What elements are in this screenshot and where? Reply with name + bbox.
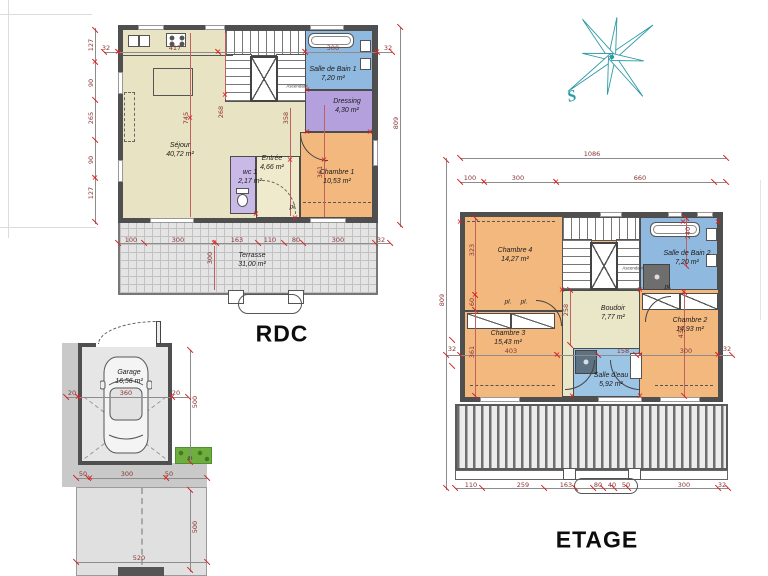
window [205, 25, 225, 30]
elevator-shaft [250, 56, 278, 102]
closet [467, 313, 511, 329]
dim-label: 300 [678, 481, 690, 489]
room-label-salle-de-bain-2: Salle de Bain 27,20 m² [663, 249, 710, 267]
wall-node-marker: ✕ [87, 474, 94, 483]
wall-node-marker: ✕ [569, 392, 576, 401]
wall-node-marker: ✕ [215, 48, 222, 57]
dimension-line [76, 562, 207, 563]
dim-label: 300 [172, 236, 184, 244]
garage-plan [78, 343, 172, 465]
wall-node-marker: ✕ [302, 48, 309, 57]
dim-label: 163 [231, 236, 243, 244]
sink-icon [706, 228, 717, 241]
dim-label: 360 [120, 389, 132, 397]
dim-label: 358 [282, 112, 290, 124]
wall-node-marker: ✕ [715, 218, 722, 227]
wall-node-marker: ✕ [457, 218, 464, 227]
sink-icon [360, 58, 371, 70]
dimension-line [446, 355, 732, 356]
window [118, 72, 123, 94]
sliding-door [150, 218, 194, 223]
stairs-direction-label: Ascendant [622, 266, 643, 271]
wall-node-marker: ✕ [304, 128, 311, 137]
room-label-dressing: Dressing4,30 m² [333, 97, 361, 115]
dim-label: 127 [87, 187, 95, 199]
dimension-line [684, 292, 685, 396]
closet-label: pl. [521, 299, 528, 306]
floor-title-etage: ETAGE [556, 527, 639, 554]
floorplan-sheet: Séjour40,72 m² wc 12,17 m² Entrée4,66 m²… [0, 0, 768, 576]
dim-label: 300 [512, 174, 524, 182]
dimension-line [76, 478, 207, 479]
room-label-salle-de-bain-1: Salle de Bain 17,20 m² [309, 65, 356, 83]
dimension-line [400, 27, 401, 227]
dimension-line [460, 158, 726, 159]
dim-label: 268 [217, 106, 225, 118]
floor-plan-rdc [118, 25, 378, 223]
dimension-line [225, 33, 226, 99]
dim-label: 259 [517, 481, 529, 489]
balcony-door [598, 397, 642, 402]
wall-node-marker: ✕ [637, 286, 644, 295]
window [697, 212, 713, 217]
wall-node-marker: ✕ [681, 288, 688, 297]
closet-dashed-line [470, 385, 555, 386]
dim-label: 240 [684, 227, 692, 239]
wall-node-marker: ✕ [187, 114, 194, 123]
room-label-salle-d-eau: Salle d'eau5,92 m² [594, 371, 628, 389]
wall-node-marker: ✕ [637, 392, 644, 401]
dimension-line [0, 14, 92, 15]
staircase-upper-treads [562, 217, 640, 241]
dimension-line [446, 158, 447, 490]
dim-label: 158 [617, 347, 629, 355]
dim-label: 809 [438, 294, 446, 306]
dimension-line [214, 246, 215, 290]
dim-label: 110 [465, 481, 477, 489]
dim-label: 90 [87, 156, 95, 164]
wall-node-marker: ✕ [169, 393, 176, 402]
sink-icon [360, 40, 371, 52]
balcony-step [563, 468, 576, 480]
room-label-chambre-4: Chambre 414,27 m² [498, 246, 533, 264]
kitchen-sink-icon [128, 35, 139, 47]
dim-label: 32 [448, 345, 456, 353]
terrace-curved-step [238, 294, 302, 314]
wall-node-marker: ✕ [287, 156, 294, 165]
bathtub-icon [650, 222, 700, 237]
closet-label: pl. [665, 284, 672, 291]
dimension-line [190, 33, 191, 217]
dim-label: 433 [677, 326, 685, 338]
room-label-garage: Garage16,56 m² [115, 368, 143, 386]
dim-label: 100 [125, 236, 137, 244]
window [600, 212, 622, 217]
toilet-bowl-icon [237, 194, 248, 207]
window [373, 140, 378, 166]
dimension-line [8, 0, 9, 238]
window [668, 212, 682, 217]
dim-label: 300 [206, 252, 214, 264]
window [118, 160, 123, 182]
dim-label: 809 [392, 117, 400, 129]
room-label-entree: Entrée4,66 m² [260, 154, 284, 172]
gate [118, 567, 164, 576]
window [480, 397, 520, 402]
dim-label: 500 [191, 396, 199, 408]
dim-label: 258 [562, 304, 570, 316]
dim-label: 520 [133, 554, 145, 562]
wall-node-marker: ✕ [554, 351, 561, 360]
staircase-right-treads [276, 54, 307, 102]
closet-dashed-line [303, 202, 371, 203]
wall-node-marker: ✕ [163, 474, 170, 483]
balcony-railing [455, 404, 728, 470]
dim-label: 300 [327, 44, 339, 52]
dimension-tick [449, 363, 456, 370]
wall-node-marker: ✕ [637, 351, 644, 360]
dimension-line [460, 182, 726, 183]
dimension-tick [449, 337, 456, 344]
wall-node-marker: ✕ [92, 58, 99, 67]
wall-node-marker: ✕ [374, 48, 381, 57]
window [138, 25, 164, 30]
dim-label: 361 [468, 346, 476, 358]
dim-label: 300 [332, 236, 344, 244]
cupboard-icon [124, 92, 135, 142]
window [660, 397, 700, 402]
wall-node-marker: ✕ [481, 178, 488, 187]
wall-node-marker: ✕ [115, 48, 122, 57]
staircase-left-treads [225, 54, 252, 102]
dim-label: 127 [87, 39, 95, 51]
wall-node-marker: ✕ [680, 218, 687, 227]
wall-node-marker: ✕ [92, 174, 99, 183]
wall-node-marker: ✕ [715, 351, 722, 360]
dim-label: 323 [468, 244, 476, 256]
dimension-line [118, 243, 390, 244]
dim-label: 660 [634, 174, 646, 182]
window-dashed-line [467, 221, 555, 222]
room-label-wc: wc 12,17 m² [238, 168, 262, 186]
dimension-line [760, 180, 761, 320]
dim-label: 403 [505, 347, 517, 355]
room-label-sejour: Séjour40,72 m² [166, 141, 194, 159]
window [310, 25, 344, 30]
dim-label: 100 [464, 174, 476, 182]
room-label-terrasse: Terrasse31,00 m² [238, 251, 266, 269]
staircase-right-treads [616, 239, 640, 290]
room-label-chambre-1: Chambre 110,53 m² [320, 168, 355, 186]
room-label-boudoir: Boudoir7,77 m² [601, 304, 625, 322]
dimension-line [570, 290, 571, 345]
closet-label: pl. [290, 204, 297, 211]
wall-node-marker: ✕ [553, 178, 560, 187]
dim-label: 300 [121, 470, 133, 478]
wall-node-marker: ✕ [75, 393, 82, 402]
staircase-left-treads [562, 239, 592, 290]
wall-node-marker: ✕ [367, 128, 374, 137]
dim-label: 500 [191, 521, 199, 533]
dim-label: 265 [87, 112, 95, 124]
dim-label: 361 [316, 166, 324, 178]
wall-node-marker: ✕ [559, 286, 566, 295]
wall-node-marker: ✕ [253, 210, 260, 219]
hedge [175, 447, 212, 464]
window [310, 218, 346, 223]
wall-node-marker: ✕ [211, 239, 218, 248]
floor-title-rdc: RDC [256, 321, 309, 348]
dim-label: 110 [264, 236, 276, 244]
elevator-shaft [590, 242, 618, 290]
dimension-line [0, 227, 96, 228]
wall-node-marker: ✕ [304, 86, 311, 95]
wall-node-marker: ✕ [222, 91, 229, 100]
dim-label: 417 [169, 44, 181, 52]
dim-label: 90 [87, 79, 95, 87]
kitchen-sink-icon [139, 35, 150, 47]
wall-node-marker: ✕ [321, 156, 328, 165]
table-icon [153, 68, 193, 96]
closet-label: pl. [505, 299, 512, 306]
wall-node-marker: ✕ [472, 291, 479, 300]
garage-door-arc [98, 321, 158, 344]
dim-label: 32 [377, 236, 385, 244]
dim-label: 300 [680, 347, 692, 355]
dimension-line [104, 52, 392, 53]
room-label-chambre-3: Chambre 315,43 m² [491, 329, 526, 347]
wall-node-marker: ✕ [292, 214, 299, 223]
dim-label: 1086 [584, 150, 601, 158]
